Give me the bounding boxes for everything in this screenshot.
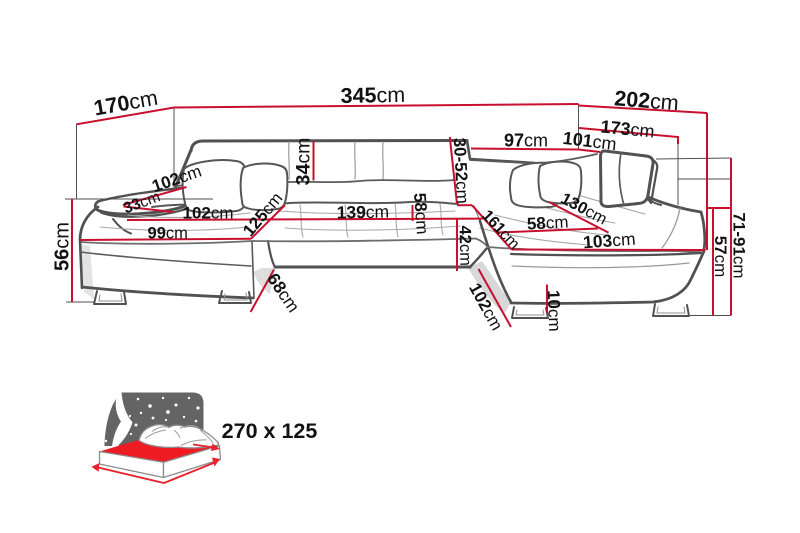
svg-text:99cm: 99cm xyxy=(148,224,188,242)
svg-text:202cm: 202cm xyxy=(613,86,679,115)
svg-text:71-91cm: 71-91cm xyxy=(730,212,749,278)
svg-text:139cm: 139cm xyxy=(336,202,389,223)
svg-text:102cm: 102cm xyxy=(182,204,233,223)
svg-text:34cm: 34cm xyxy=(293,138,315,186)
svg-text:30-52cm: 30-52cm xyxy=(450,137,472,204)
svg-text:56cm: 56cm xyxy=(52,222,74,271)
svg-text:345cm: 345cm xyxy=(340,83,405,108)
svg-text:10cm: 10cm xyxy=(544,290,564,332)
svg-text:103cm: 103cm xyxy=(582,229,636,253)
svg-text:58cm: 58cm xyxy=(526,212,569,233)
svg-text:57cm: 57cm xyxy=(711,236,730,278)
svg-text:270 x 125: 270 x 125 xyxy=(222,419,318,443)
svg-text:42cm: 42cm xyxy=(456,225,475,266)
svg-text:58cm: 58cm xyxy=(410,192,432,235)
svg-text:97cm: 97cm xyxy=(504,131,548,151)
